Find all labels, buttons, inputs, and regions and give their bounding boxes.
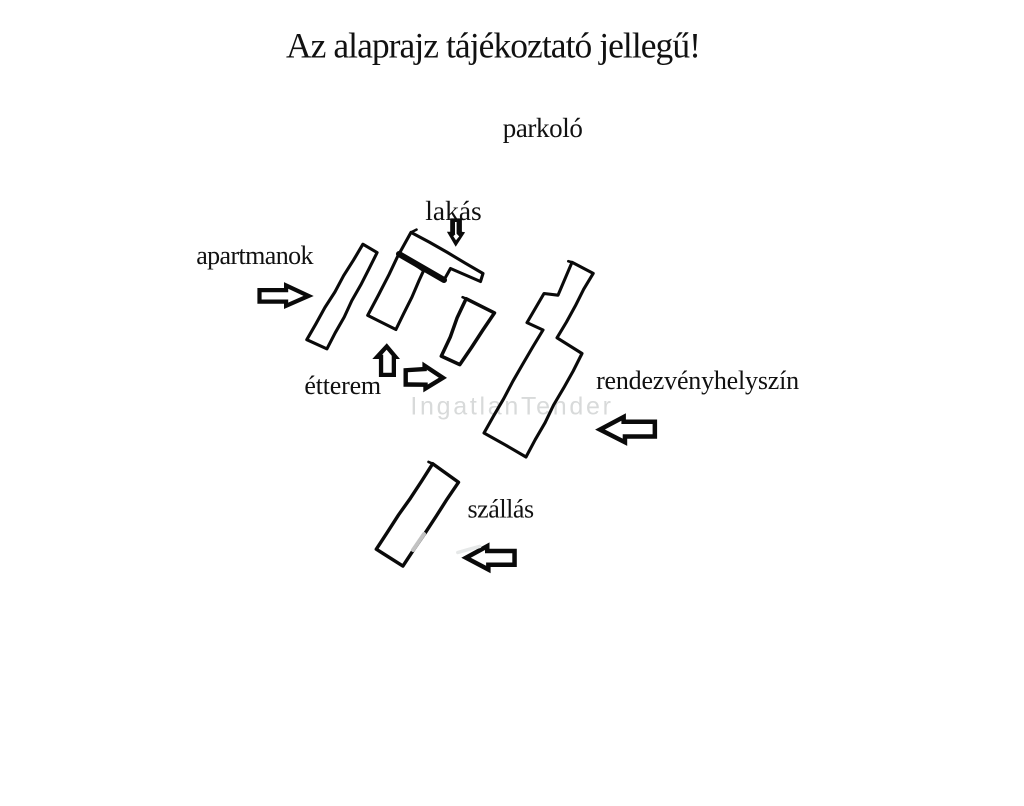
svg-text:étterem: étterem xyxy=(304,371,381,400)
svg-text:parkoló: parkoló xyxy=(503,113,583,143)
svg-text:IngatlanTender: IngatlanTender xyxy=(410,393,613,421)
svg-text:apartmanok: apartmanok xyxy=(196,241,313,270)
svg-text:rendezvényhelyszín: rendezvényhelyszín xyxy=(596,366,799,395)
svg-text:Az alaprajz tájékoztató jelleg: Az alaprajz tájékoztató jellegű! xyxy=(286,26,700,66)
svg-text:szállás: szállás xyxy=(468,495,534,524)
